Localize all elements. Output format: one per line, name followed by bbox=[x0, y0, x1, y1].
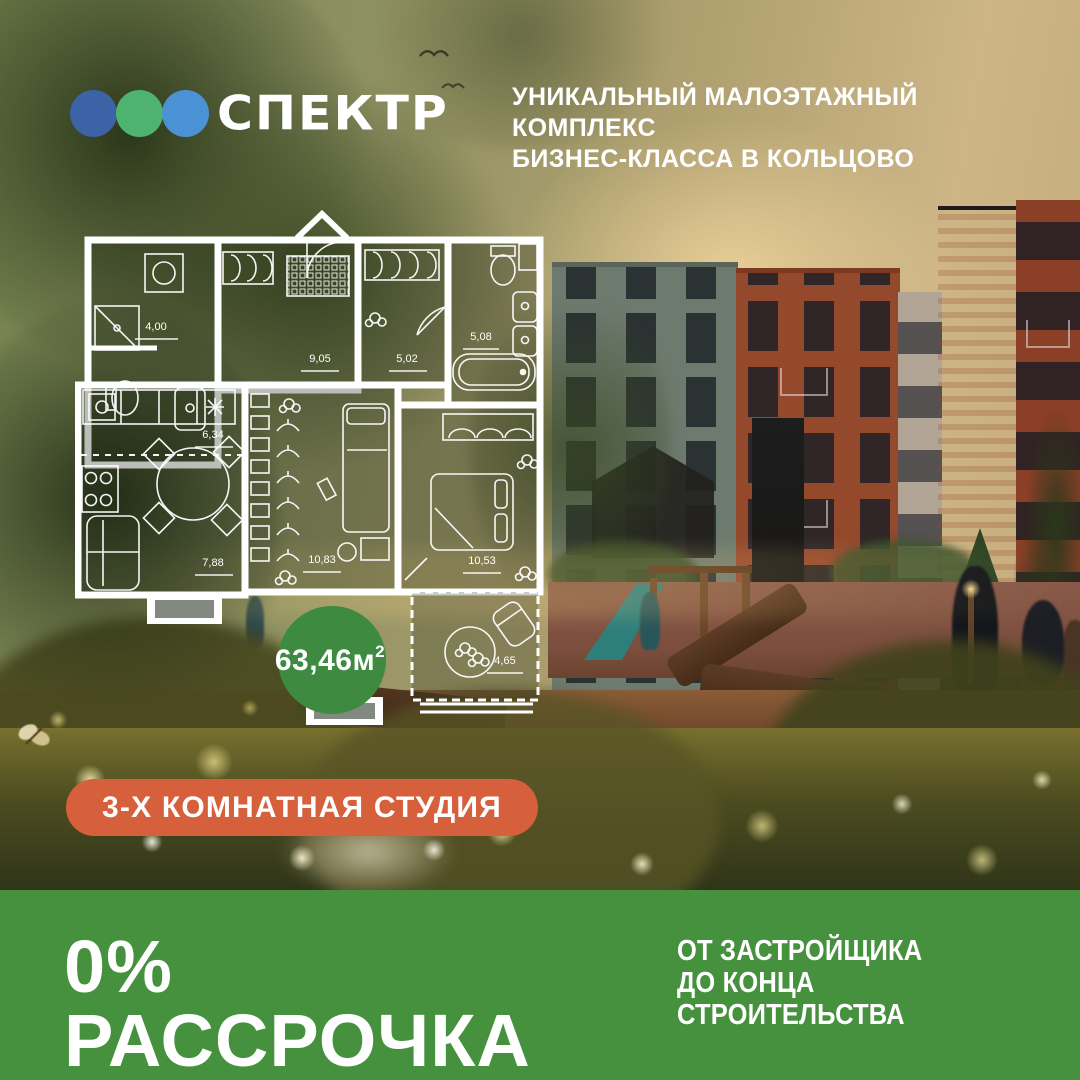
room-area-label: 4,00 bbox=[145, 321, 166, 333]
butterfly-icon bbox=[14, 718, 56, 756]
logo-dot-blue bbox=[70, 90, 117, 137]
total-area-label: 63,46м2 bbox=[275, 642, 385, 677]
total-area-superscript: 2 bbox=[375, 642, 385, 661]
room-area-label: 6,34 bbox=[202, 429, 223, 441]
offer-sub-line1: ОТ ЗАСТРОЙЩИКА bbox=[677, 936, 1032, 968]
floor-plan: 4,00 9,05 5,02 5,08 6,34 7,88 10,83 10,5… bbox=[75, 208, 545, 732]
apartment-type-badge: 3-Х КОМНАТНАЯ СТУДИЯ bbox=[66, 779, 538, 836]
logo-dot-lightblue bbox=[162, 90, 209, 137]
offer-sub-line2: ДО КОНЦА СТРОИТЕЛЬСТВА bbox=[677, 968, 1032, 1032]
total-area-circle: 63,46м2 bbox=[275, 606, 386, 714]
tagline-line2: БИЗНЕС-КЛАССА В КОЛЬЦОВО bbox=[512, 144, 1052, 175]
tagline-line1: УНИКАЛЬНЫЙ МАЛОЭТАЖНЫЙ КОМПЛЕКС bbox=[512, 82, 1052, 144]
room-area-label: 10,53 bbox=[468, 555, 496, 567]
room-area-label: 4,65 bbox=[494, 655, 515, 667]
room-area-label: 7,88 bbox=[202, 557, 223, 569]
logo-dot-green bbox=[116, 90, 163, 137]
ad-poster: СПЕКТР УНИКАЛЬНЫЙ МАЛОЭТАЖНЫЙ КОМПЛЕКС Б… bbox=[0, 0, 1080, 1080]
room-area-label: 10,83 bbox=[308, 554, 336, 566]
offer-banner: 0% РАССРОЧКА ОТ ЗАСТРОЙЩИКА ДО КОНЦА СТР… bbox=[0, 890, 1080, 1080]
balcony-railing bbox=[1026, 320, 1070, 348]
offer-subtext: ОТ ЗАСТРОЙЩИКА ДО КОНЦА СТРОИТЕЛЬСТВА bbox=[677, 936, 1032, 1032]
room-area-label: 5,08 bbox=[470, 331, 491, 343]
tagline: УНИКАЛЬНЫЙ МАЛОЭТАЖНЫЙ КОМПЛЕКС БИЗНЕС-К… bbox=[512, 82, 1052, 175]
total-area-value: 63,46м bbox=[275, 644, 375, 677]
balcony-railing bbox=[780, 368, 828, 396]
brand-name: СПЕКТР bbox=[217, 86, 449, 141]
room-area-label: 5,02 bbox=[396, 353, 417, 365]
room-area-label: 9,05 bbox=[309, 353, 330, 365]
logo: СПЕКТР bbox=[70, 85, 449, 142]
apartment-type-label: 3-Х КОМНАТНАЯ СТУДИЯ bbox=[102, 791, 502, 825]
offer-headline: 0% РАССРОЧКА bbox=[64, 930, 633, 1078]
